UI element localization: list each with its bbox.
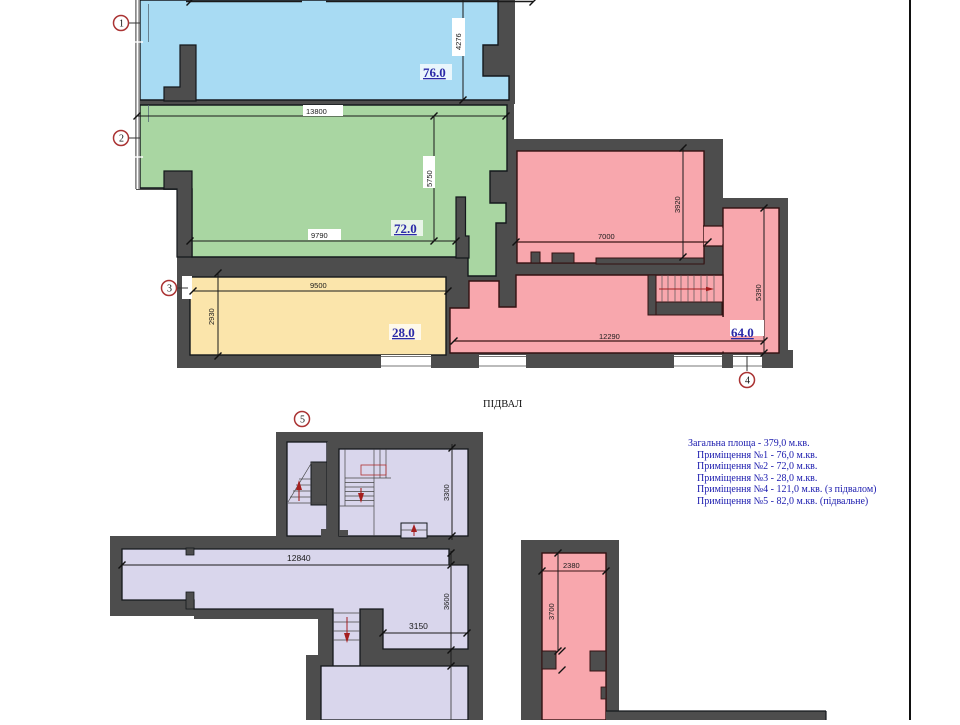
svg-text:ПІДВАЛ: ПІДВАЛ xyxy=(483,399,522,410)
svg-text:Приміщення №3 - 28,0 м.кв.: Приміщення №3 - 28,0 м.кв. xyxy=(697,473,817,484)
svg-text:12290: 12290 xyxy=(599,332,620,341)
svg-text:12840: 12840 xyxy=(287,553,311,563)
svg-text:9500: 9500 xyxy=(310,281,327,290)
svg-text:Приміщення №2 - 72,0 м.кв.: Приміщення №2 - 72,0 м.кв. xyxy=(697,461,817,472)
svg-text:1: 1 xyxy=(119,19,124,30)
svg-text:4: 4 xyxy=(745,376,750,387)
svg-text:Приміщення №1 - 76,0 м.кв.: Приміщення №1 - 76,0 м.кв. xyxy=(697,450,817,461)
svg-text:5390: 5390 xyxy=(754,284,763,301)
svg-text:4276: 4276 xyxy=(454,33,463,50)
svg-text:2: 2 xyxy=(119,134,124,145)
svg-text:2380: 2380 xyxy=(563,561,580,570)
svg-text:64.0: 64.0 xyxy=(731,325,754,340)
svg-text:28.0: 28.0 xyxy=(392,325,415,340)
svg-text:3150: 3150 xyxy=(409,621,428,631)
svg-text:5: 5 xyxy=(300,415,305,426)
svg-text:Приміщення №4 - 121,0 м.кв. (з: Приміщення №4 - 121,0 м.кв. (з підвалом) xyxy=(697,484,876,495)
svg-text:3600: 3600 xyxy=(442,593,451,610)
svg-text:9790: 9790 xyxy=(311,231,328,240)
svg-text:3300: 3300 xyxy=(442,484,451,501)
svg-text:13800: 13800 xyxy=(306,107,327,116)
svg-text:2930: 2930 xyxy=(207,308,216,325)
svg-text:76.0: 76.0 xyxy=(423,65,446,80)
svg-text:3: 3 xyxy=(167,284,172,295)
svg-text:Загальна площа - 379,0 м.кв.: Загальна площа - 379,0 м.кв. xyxy=(688,438,810,449)
svg-text:3920: 3920 xyxy=(673,196,682,213)
svg-text:Приміщення №5 - 82,0 м.кв. (пі: Приміщення №5 - 82,0 м.кв. (підвальне) xyxy=(697,496,868,507)
svg-text:3700: 3700 xyxy=(547,603,556,620)
svg-text:7000: 7000 xyxy=(598,232,615,241)
svg-text:72.0: 72.0 xyxy=(394,221,417,236)
svg-text:5750: 5750 xyxy=(425,170,434,187)
